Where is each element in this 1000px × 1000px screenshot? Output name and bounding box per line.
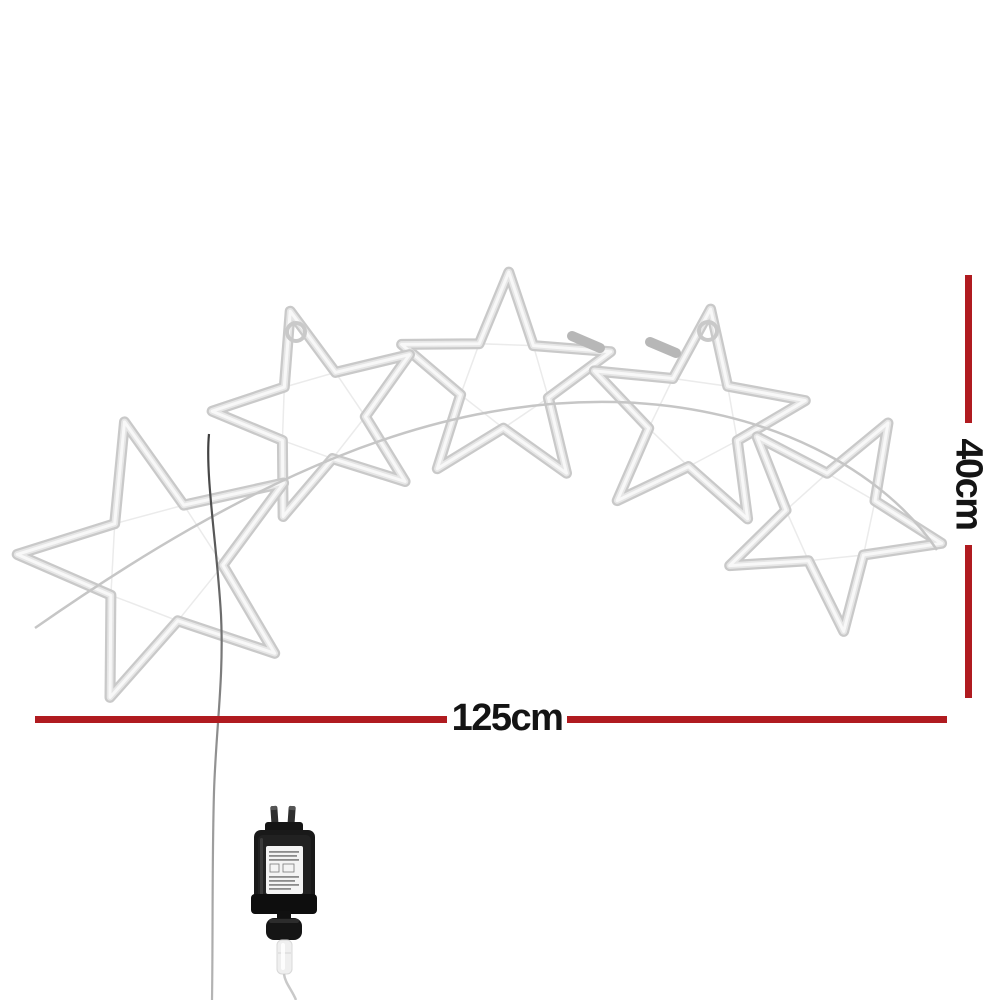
adapter-body-highlight (260, 838, 263, 900)
adapter-connector-sheen (281, 943, 285, 970)
height-dimension-line-top (965, 275, 972, 423)
star-outline-3 (402, 272, 611, 473)
plug-prong-left-tip (271, 806, 277, 810)
star-tube-mid (17, 422, 283, 698)
height-dimension-label: 40cm (947, 438, 990, 529)
width-dimension-line-right (567, 716, 947, 723)
star-brace-wires (649, 379, 738, 467)
adapter-nut-highlight (269, 919, 299, 923)
product-dimension-image: 125cm 40cm (0, 0, 1000, 1000)
label-print-line (269, 855, 297, 857)
star-light-illustration (0, 0, 1000, 1000)
label-print-line (269, 880, 295, 882)
star-outline-1 (17, 422, 283, 698)
label-print-line (269, 859, 299, 861)
power-adapter (251, 806, 317, 1000)
tube-sleeve (650, 342, 676, 353)
label-print-line (269, 884, 299, 886)
plug-prong-right-tip (289, 806, 295, 810)
star-brace-wires (786, 473, 875, 561)
star-brace-wires (111, 505, 223, 621)
star-outline-5 (730, 423, 942, 631)
width-dimension-line-left (35, 716, 447, 723)
star-outline-2 (212, 311, 409, 516)
label-print-line (269, 876, 299, 878)
adapter-spec-label (266, 846, 303, 894)
label-print-line (269, 888, 291, 890)
height-dimension-line-bottom (965, 545, 972, 698)
adapter-cord (284, 974, 296, 1000)
star-brace-wires (282, 372, 365, 458)
label-print-line (269, 851, 299, 853)
width-dimension-label: 125cm (447, 696, 567, 740)
